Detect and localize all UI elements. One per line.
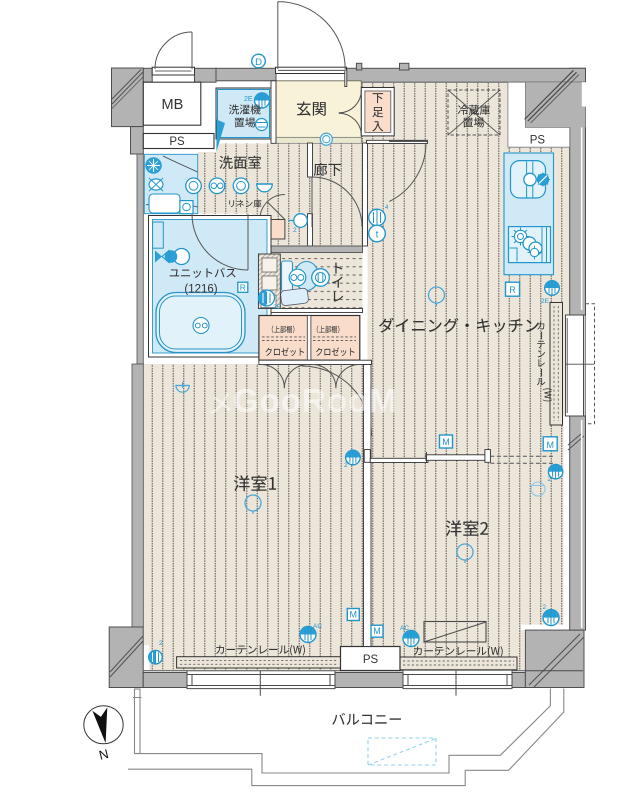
svg-text:MB: MB bbox=[162, 97, 184, 113]
svg-text:PS: PS bbox=[530, 135, 546, 147]
svg-text:M: M bbox=[373, 626, 381, 636]
svg-text:R: R bbox=[240, 282, 246, 292]
svg-text:GooRooM: GooRooM bbox=[233, 382, 398, 419]
svg-text:2: 2 bbox=[543, 604, 547, 611]
svg-text:2E: 2E bbox=[244, 96, 253, 103]
svg-text:t: t bbox=[376, 230, 379, 241]
svg-text:(1216): (1216) bbox=[184, 284, 217, 296]
svg-text:2: 2 bbox=[548, 476, 552, 483]
svg-text:M: M bbox=[546, 440, 554, 450]
svg-text:M: M bbox=[442, 437, 450, 447]
svg-text:PS: PS bbox=[169, 136, 185, 148]
svg-text:D: D bbox=[255, 57, 262, 68]
svg-text:2: 2 bbox=[344, 462, 348, 469]
svg-text:2: 2 bbox=[293, 227, 297, 234]
svg-text:2: 2 bbox=[159, 640, 163, 647]
svg-text:2E: 2E bbox=[541, 298, 550, 305]
svg-text:AC: AC bbox=[313, 623, 322, 630]
svg-text:PS: PS bbox=[363, 654, 379, 666]
svg-text:AC: AC bbox=[400, 625, 409, 632]
svg-text:R: R bbox=[509, 285, 516, 295]
svg-text:2E: 2E bbox=[273, 304, 282, 311]
svg-text:M: M bbox=[350, 610, 358, 620]
svg-text:N: N bbox=[97, 746, 110, 763]
